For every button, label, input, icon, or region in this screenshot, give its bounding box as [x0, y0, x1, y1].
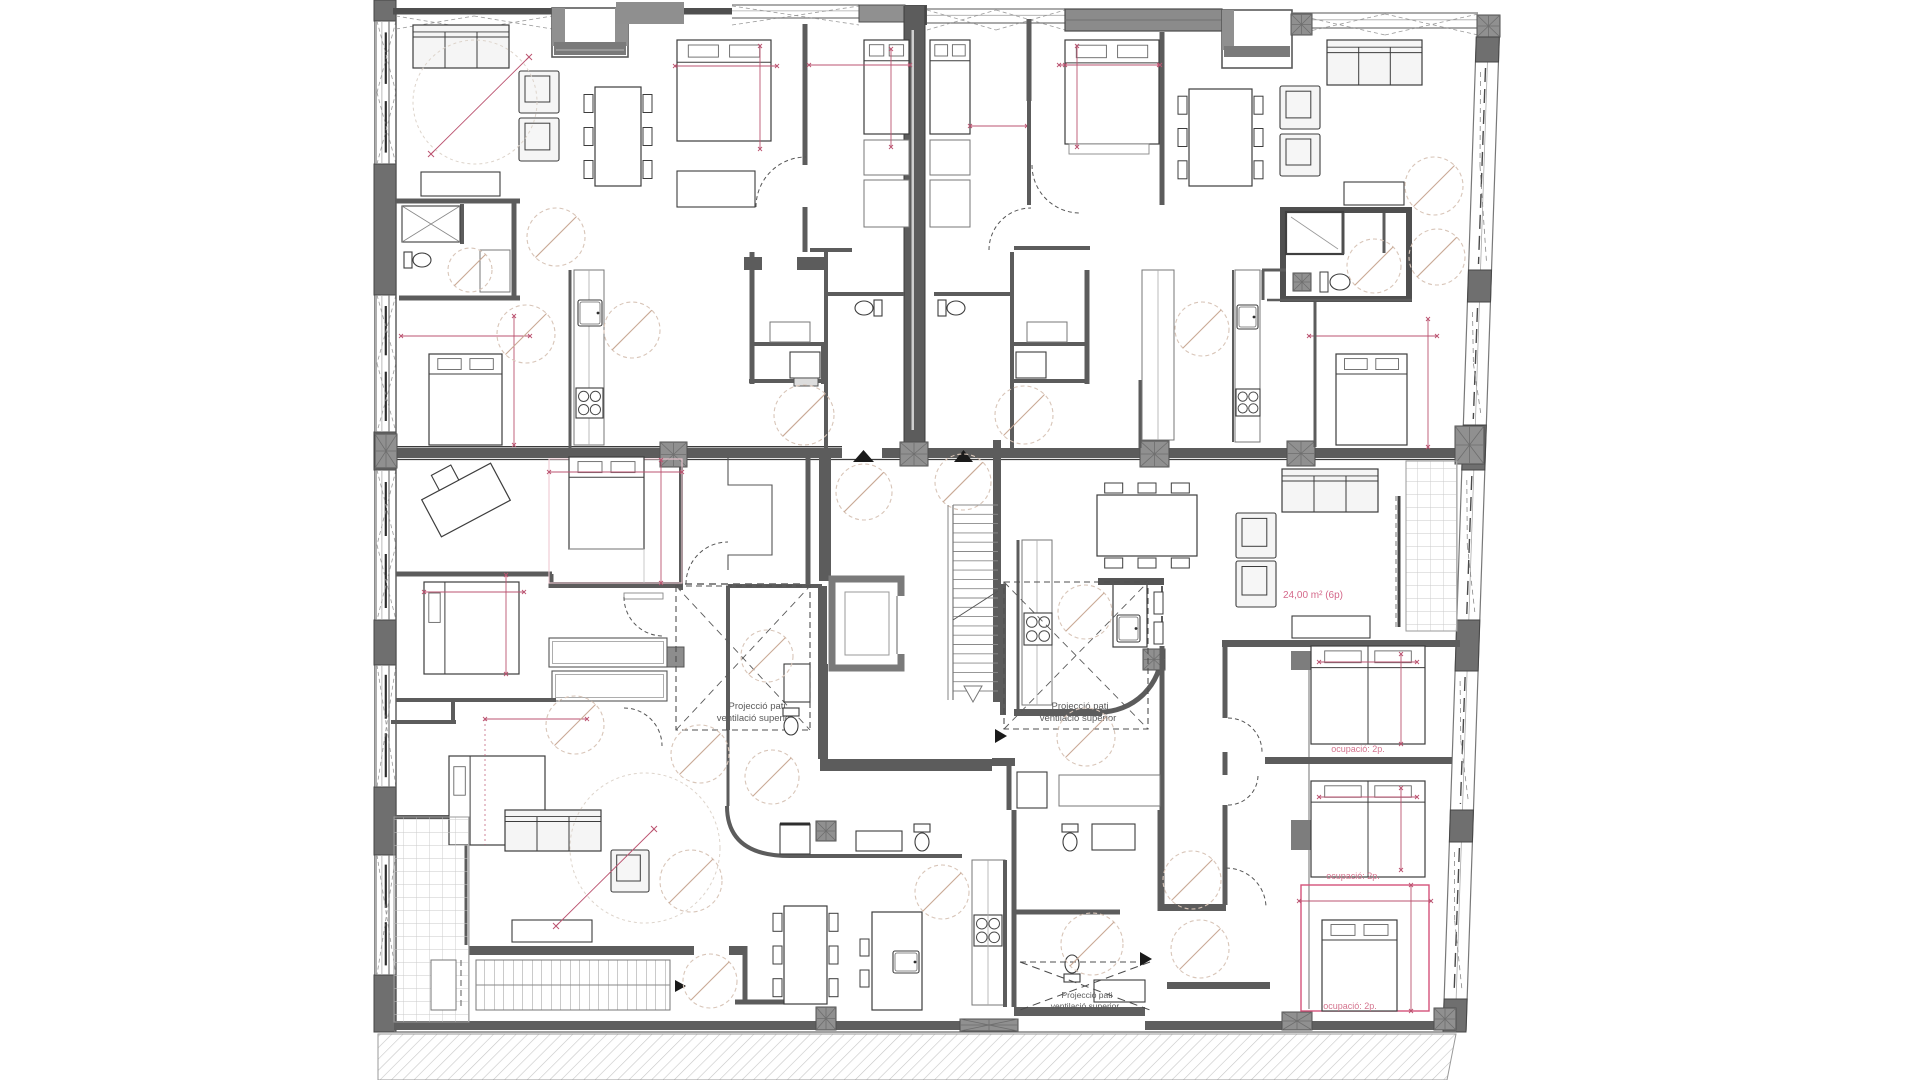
svg-text:Projecció pati: Projecció pati: [1051, 701, 1108, 712]
svg-text:ocupació: 2p.: ocupació: 2p.: [1331, 744, 1385, 754]
svg-text:Projecció pati: Projecció pati: [1061, 990, 1112, 1000]
svg-text:ocupació: 2p.: ocupació: 2p.: [1326, 871, 1380, 881]
svg-text:ventilació superior: ventilació superior: [1051, 1001, 1120, 1011]
svg-text:ventilació superior: ventilació superior: [717, 713, 794, 724]
svg-text:Projecció pati: Projecció pati: [728, 701, 785, 712]
svg-text:ocupació: 2p.: ocupació: 2p.: [1323, 1001, 1377, 1011]
svg-text:24,00 m² (6p): 24,00 m² (6p): [1283, 590, 1343, 601]
